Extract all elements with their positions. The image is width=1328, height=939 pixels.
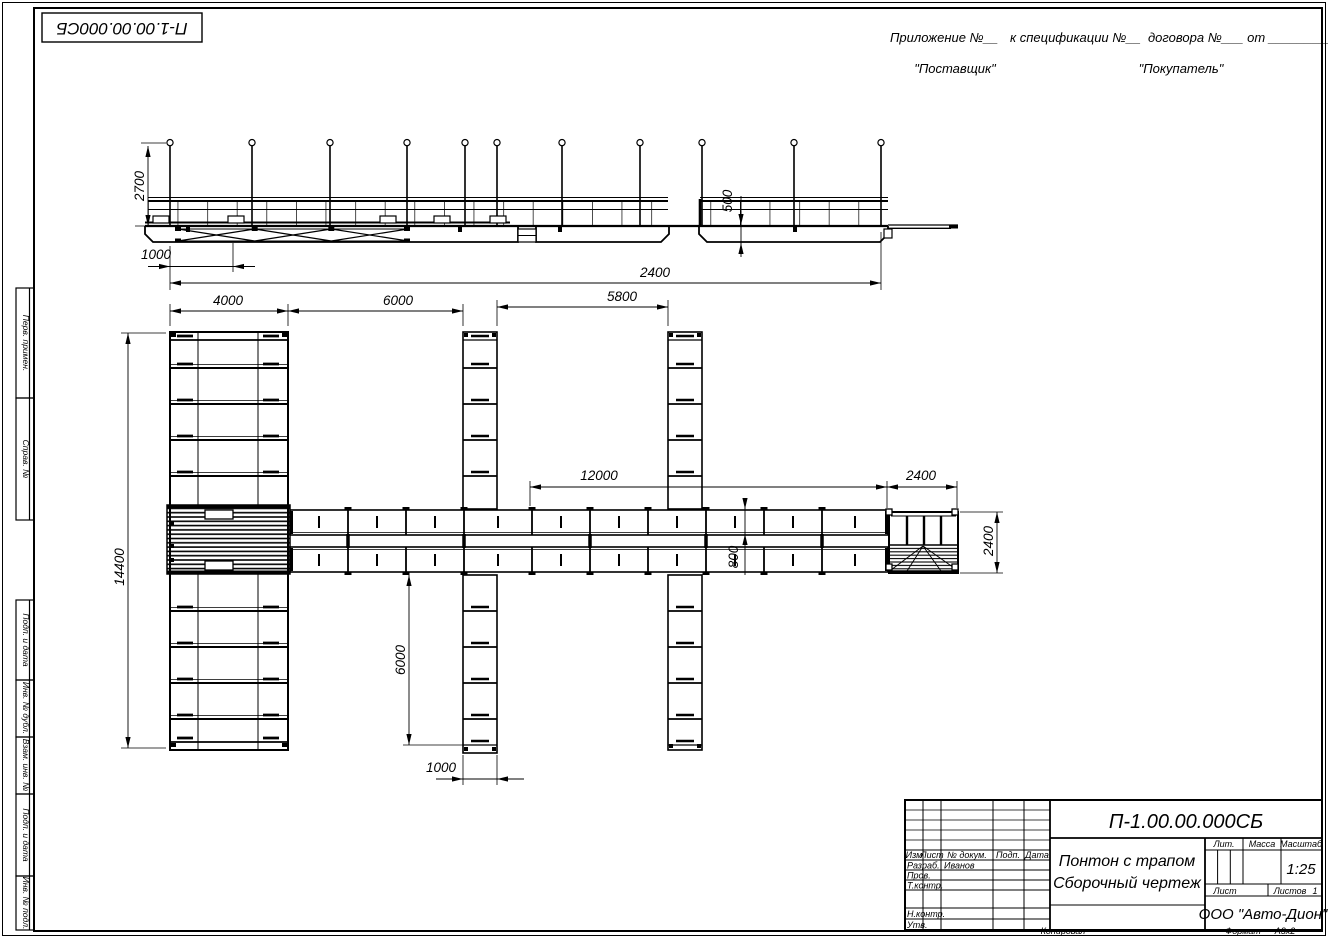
row-developed: Разраб.	[907, 861, 940, 871]
margin-sign-date-1: Подп. и дата	[21, 613, 31, 666]
dim-4000-label: 4000	[213, 293, 244, 308]
mass-label: Масса	[1249, 839, 1276, 849]
row-approved: Утв.	[906, 920, 927, 930]
title-doc-number: П-1.00.00.000СБ	[1109, 811, 1263, 833]
dim-14400-label: 14400	[112, 548, 127, 586]
drawing-sheet: П-1.00.00.000СБ Перв. примен. Справ. № П…	[0, 0, 1328, 939]
dim-800-label: 800	[726, 545, 741, 568]
developer-name: Иванов	[944, 861, 975, 871]
dim-2400-elev-label: 2400	[639, 265, 671, 280]
sheets-count: 1	[1312, 886, 1317, 896]
margin-inv-orig: Инв. № подл.	[21, 877, 31, 930]
sheet-frame	[3, 3, 1326, 936]
margin-inv-dupl: Инв. № дубл.	[21, 682, 31, 734]
lit-label: Лит.	[1212, 839, 1234, 849]
dim-2400-platform-label: 2400	[981, 525, 996, 557]
margin-ref-no: Справ. №	[21, 440, 31, 479]
dim-12000-label: 12000	[580, 468, 618, 483]
margin-first-use: Перв. примен.	[21, 315, 31, 372]
dim-1000-finger-label: 1000	[426, 760, 457, 775]
dim-6000-finger-label: 6000	[393, 644, 408, 675]
scale-value: 1:25	[1286, 861, 1316, 878]
supplier-label: "Поставщик"	[914, 61, 997, 76]
format-value: А3х2	[1274, 926, 1296, 936]
buyer-label: "Покупатель"	[1139, 61, 1225, 76]
dim-1000-elev-label: 1000	[141, 247, 172, 262]
appendix-line-part3: договора №___ от _________	[1148, 30, 1328, 45]
scale-label: Масштаб	[1280, 839, 1323, 849]
dim-500-label: 500	[720, 189, 735, 212]
margin-repl-inv: Взам. инв. №	[21, 739, 31, 792]
format-label: Формат	[1225, 926, 1261, 936]
sheet-label: Лист	[1212, 886, 1237, 896]
appendix-line-part2: к спецификации №__	[1010, 30, 1141, 45]
row-checked: Пров.	[907, 871, 931, 881]
sheets-label: Листов	[1273, 886, 1307, 896]
row-tcontrol: Т.контр.	[907, 881, 943, 891]
col-doc: № докум.	[947, 850, 987, 860]
col-date: Дата	[1024, 850, 1049, 860]
row-ncontrol: Н.контр.	[907, 909, 945, 919]
product-title: Понтон с трапом	[1059, 853, 1196, 870]
dim-6000-label: 6000	[383, 293, 414, 308]
margin-sign-date-2: Подп. и дата	[21, 808, 31, 861]
dim-2700-label: 2700	[132, 170, 147, 202]
dimension-lines	[121, 143, 1003, 785]
dim-2400-plan-label: 2400	[905, 468, 937, 483]
assembly-drawing-canvas: П-1.00.00.000СБ Перв. примен. Справ. № П…	[0, 0, 1328, 939]
plan-view	[167, 332, 958, 753]
dim-5800-label: 5800	[607, 289, 638, 304]
copied-label: Копировал	[1041, 926, 1086, 936]
col-sign: Подп.	[996, 850, 1020, 860]
company-name: ООО "Авто-Дион"	[1199, 906, 1328, 923]
doc-number-top: П-1.00.00.000СБ	[56, 19, 187, 38]
elevation-view	[145, 140, 958, 243]
doc-type: Сборочный чертеж	[1053, 875, 1202, 892]
appendix-line-part1: Приложение №__	[890, 30, 998, 45]
col-list: Лист	[919, 850, 944, 860]
